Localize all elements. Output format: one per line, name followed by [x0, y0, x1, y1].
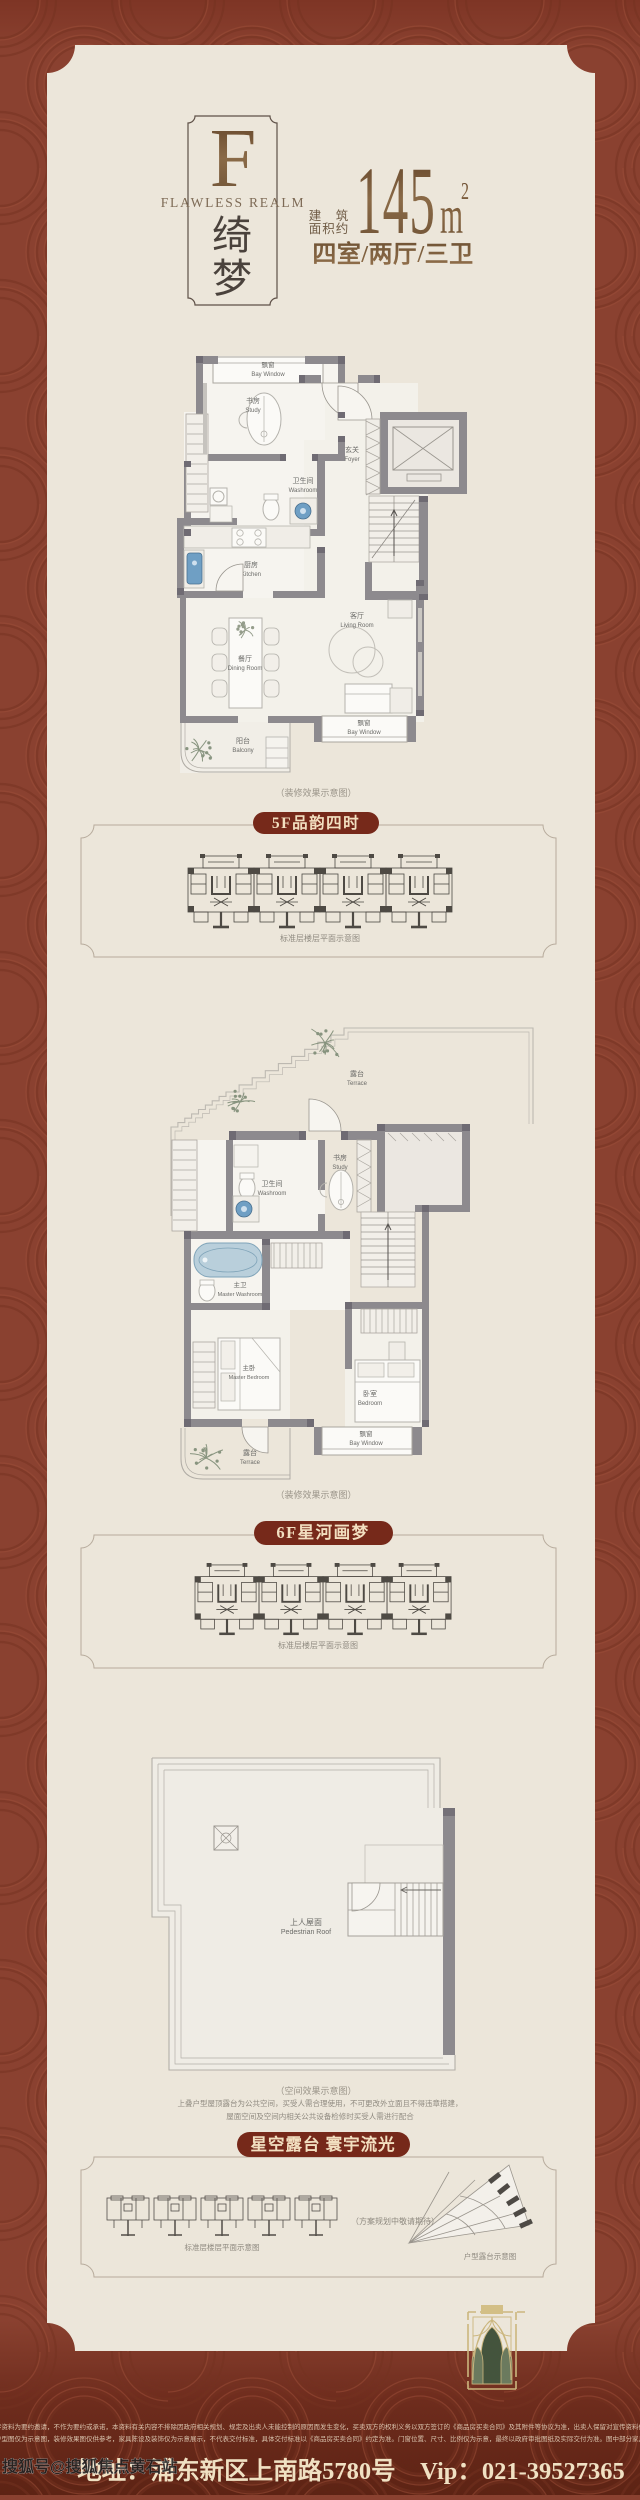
svg-text:（装修效果示意图）: （装修效果示意图）: [275, 787, 356, 798]
svg-text:书房: 书房: [246, 396, 260, 405]
svg-text:露台: 露台: [350, 1069, 364, 1078]
svg-text:餐厅: 餐厅: [238, 654, 252, 663]
svg-text:标准层楼层平面示意图: 标准层楼层平面示意图: [280, 933, 360, 943]
svg-text:书房: 书房: [333, 1153, 347, 1162]
svg-text:m: m: [440, 187, 463, 245]
svg-text:卧室: 卧室: [363, 1389, 377, 1398]
svg-text:建 筑: 建 筑: [309, 208, 350, 223]
svg-text:玄关: 玄关: [345, 445, 359, 454]
svg-text:面积约: 面积约: [309, 221, 350, 236]
svg-text:Foyer: Foyer: [344, 457, 359, 463]
svg-text:Bedroom: Bedroom: [358, 1401, 382, 1407]
svg-text:Master Bedroom: Master Bedroom: [229, 1375, 270, 1381]
svg-text:145: 145: [356, 147, 436, 254]
svg-text:屋面空间及空间内相关公共设备检修时买受人需进行配合: 屋面空间及空间内相关公共设备检修时买受人需进行配合: [226, 2111, 414, 2121]
svg-text:阳台: 阳台: [236, 736, 250, 745]
svg-text:上叠户型屋顶露台为公共空间，买受人需合理使用，不可更改外立面: 上叠户型屋顶露台为公共空间，买受人需合理使用，不可更改外立面且不得违章搭建，: [178, 2098, 463, 2108]
svg-text:（装修效果示意图）: （装修效果示意图）: [275, 1489, 356, 1500]
svg-text:飘窗: 飘窗: [262, 360, 275, 369]
svg-text:（空间效果示意图）: （空间效果示意图）: [275, 2085, 356, 2096]
svg-text:厨房: 厨房: [244, 560, 258, 569]
svg-text:Bay Window: Bay Window: [251, 372, 285, 378]
svg-text:户型露台示意图: 户型露台示意图: [464, 2251, 517, 2261]
svg-text:本宣传资料为要约邀请，不作为要约或承诺，本资料有关内容不排除: 本宣传资料为要约邀请，不作为要约或承诺，本资料有关内容不排除因政府相关规划、规定…: [0, 2422, 640, 2431]
svg-text:6F星河画梦: 6F星河画梦: [276, 1522, 369, 1542]
svg-text:卫生间: 卫生间: [293, 476, 314, 485]
svg-text:Balcony: Balcony: [232, 748, 253, 754]
svg-text:Pedestrian Roof: Pedestrian Roof: [281, 1929, 331, 1936]
svg-text:主卧: 主卧: [243, 1363, 257, 1372]
svg-text:2: 2: [461, 179, 469, 205]
svg-text:客厅: 客厅: [350, 611, 364, 620]
svg-text:卫生间: 卫生间: [262, 1179, 283, 1188]
svg-text:户型图仅为示意图，装修效果图仅供参考，家具陈设及装饰仅为示意: 户型图仅为示意图，装修效果图仅供参考，家具陈设及装饰仅为示意展示，不代表交付标准…: [0, 2434, 640, 2443]
svg-text:Dining Room: Dining Room: [228, 666, 263, 672]
svg-text:Kitchen: Kitchen: [241, 572, 261, 578]
svg-text:Bay Window: Bay Window: [347, 730, 381, 736]
svg-text:上人屋面: 上人屋面: [290, 1918, 322, 1927]
svg-text:F: F: [210, 112, 257, 205]
svg-text:飘窗: 飘窗: [360, 1429, 373, 1438]
svg-text:Study: Study: [245, 408, 260, 414]
svg-text:Terrace: Terrace: [347, 1081, 368, 1087]
svg-text:星空露台 寰宇流光: 星空露台 寰宇流光: [250, 2134, 395, 2154]
svg-text:四室/两厅/三卫: 四室/两厅/三卫: [312, 240, 473, 268]
svg-text:Washroom: Washroom: [289, 488, 318, 494]
svg-text:Washroom: Washroom: [258, 1191, 287, 1197]
svg-text:主卫: 主卫: [234, 1280, 248, 1289]
svg-text:（方案规划中敬请期待）: （方案规划中敬请期待）: [351, 2216, 439, 2226]
svg-text:标准层楼层平面示意图: 标准层楼层平面示意图: [185, 2242, 260, 2252]
svg-text:飘窗: 飘窗: [358, 718, 371, 727]
svg-text:FLAWLESS REALM: FLAWLESS REALM: [161, 195, 306, 210]
svg-text:Bay Window: Bay Window: [349, 1441, 383, 1447]
svg-text:Terrace: Terrace: [240, 1460, 261, 1466]
svg-text:搜狐号@搜狐焦点黄石站: 搜狐号@搜狐焦点黄石站: [2, 2457, 178, 2476]
svg-text:5F品韵四时: 5F品韵四时: [272, 813, 360, 832]
svg-text:绮: 绮: [212, 213, 252, 258]
svg-text:梦: 梦: [212, 256, 252, 301]
svg-text:标准层楼层平面示意图: 标准层楼层平面示意图: [278, 1640, 358, 1650]
svg-text:Master Washroom: Master Washroom: [218, 1292, 263, 1298]
svg-text:Living Room: Living Room: [340, 623, 373, 629]
